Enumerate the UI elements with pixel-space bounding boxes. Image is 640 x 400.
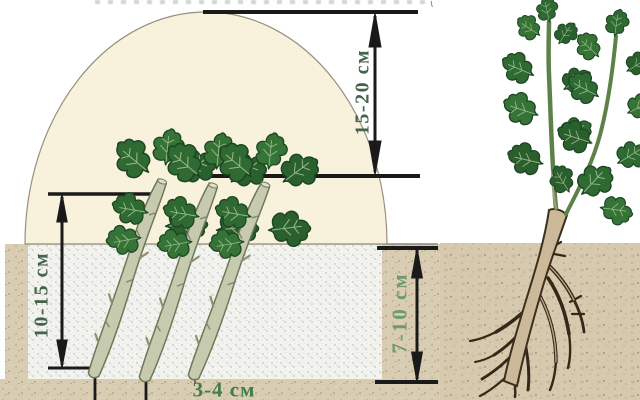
planting-diagram: 15-20 см 10-15 см 7-10 см 3-4 см xyxy=(0,0,640,400)
cutting-length-label: 10-15 см xyxy=(31,252,54,338)
cover-height-label: 15-20 см xyxy=(352,49,375,135)
cropped-text-artifact xyxy=(431,1,433,7)
plant-leaves xyxy=(496,0,640,227)
planting-depth-label: 7-10 см xyxy=(388,272,413,353)
diagram-canvas xyxy=(0,0,640,400)
base-spacing-label: 3-4 см xyxy=(193,378,256,400)
cropped-title-artifact xyxy=(95,0,430,4)
